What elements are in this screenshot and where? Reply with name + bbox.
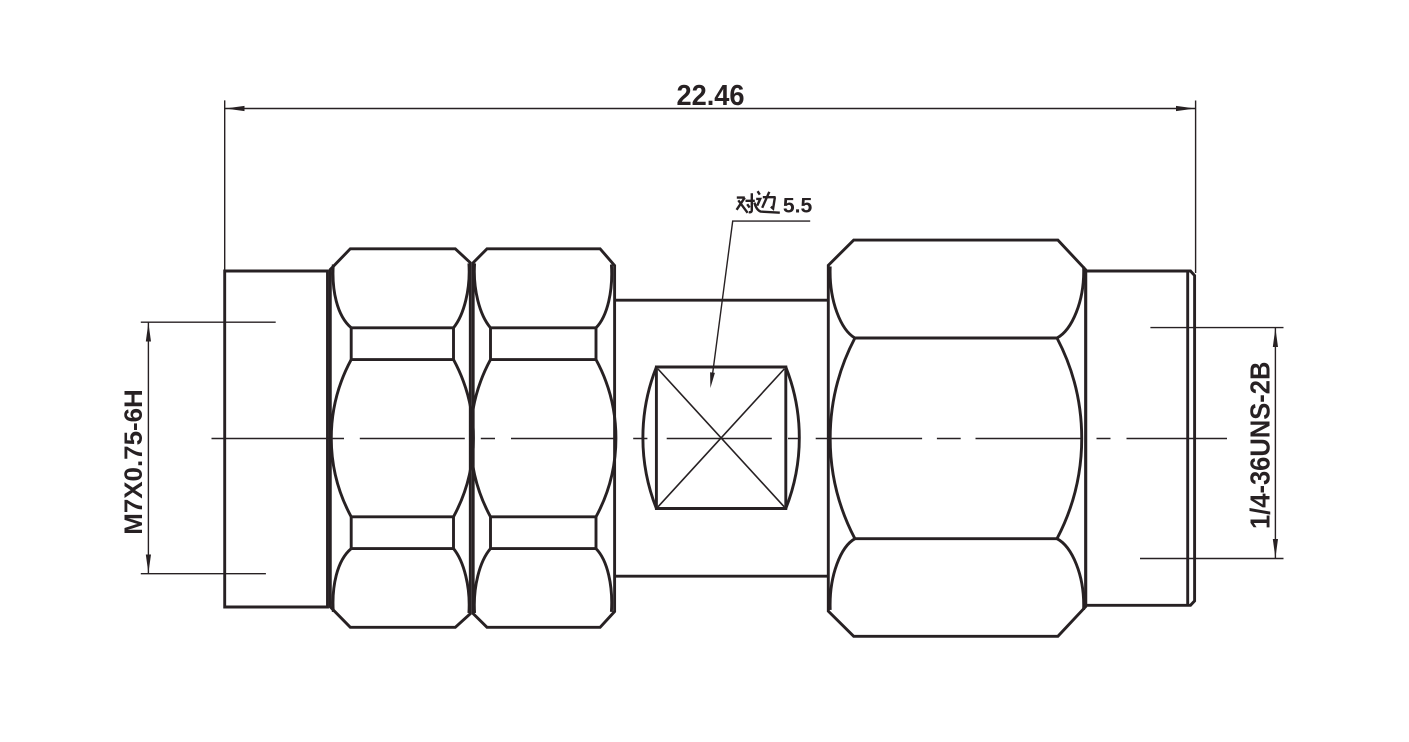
svg-text:1/4-36UNS-2B: 1/4-36UNS-2B [1245, 362, 1276, 530]
svg-text:M7X0.75-6H: M7X0.75-6H [121, 389, 148, 535]
svg-text:5.5: 5.5 [783, 194, 812, 218]
svg-text:22.46: 22.46 [677, 80, 745, 112]
